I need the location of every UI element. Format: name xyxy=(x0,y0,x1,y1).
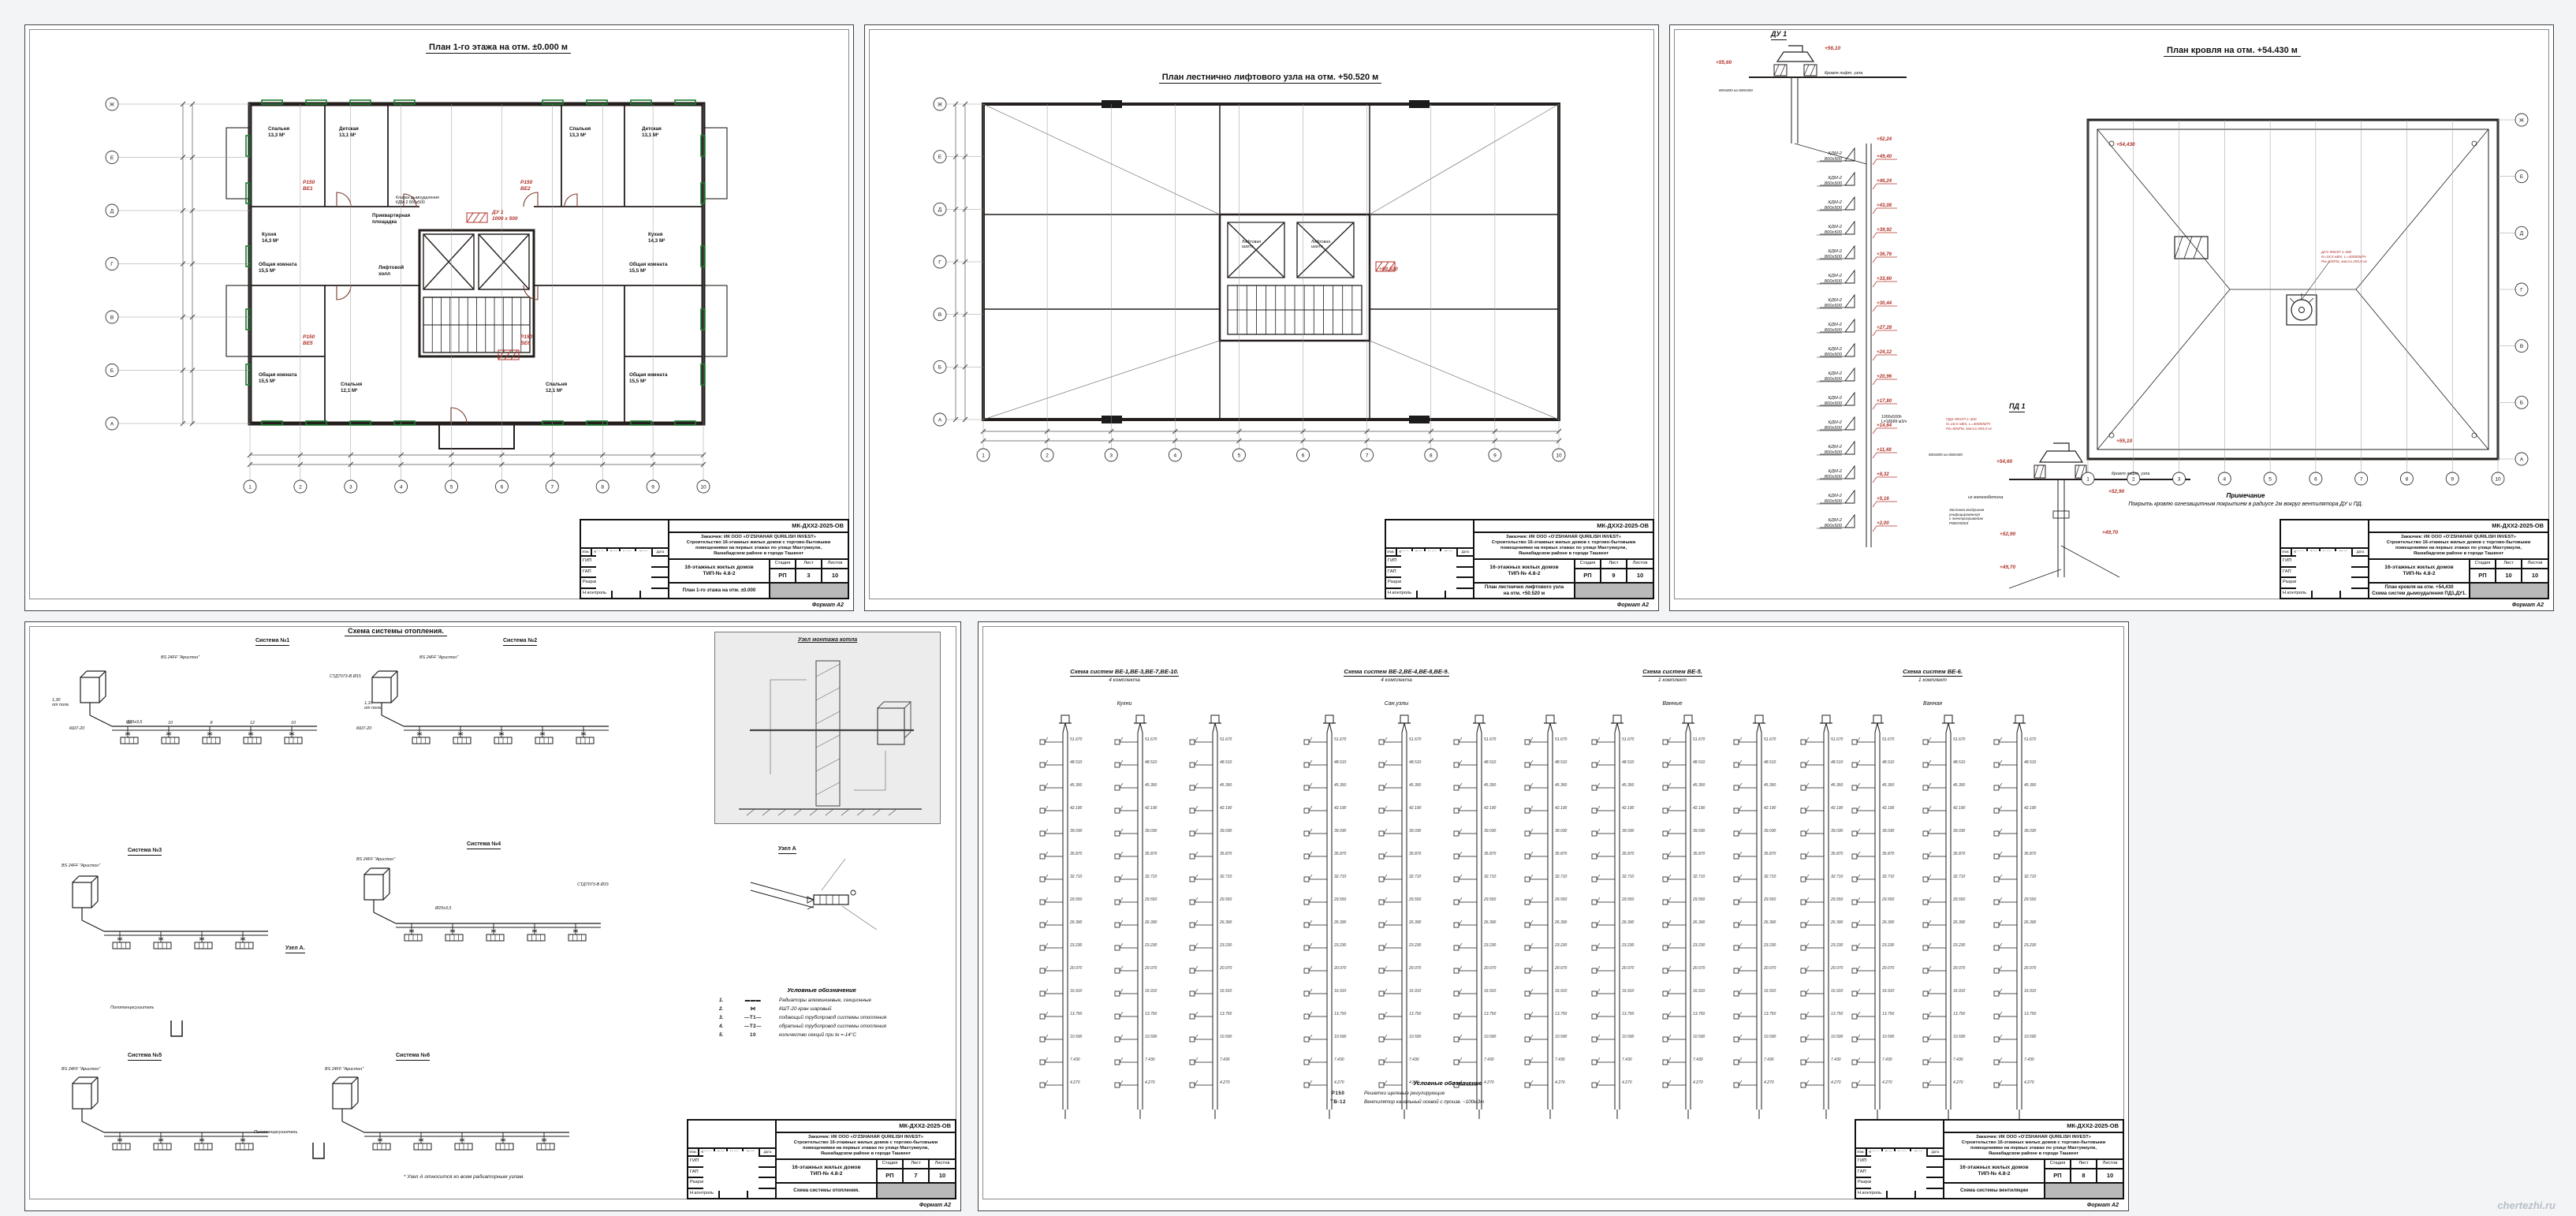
title-block: МК-ДХХ2-2025-ОВЗаказчик: ИК ООО «O'ZSHAH… xyxy=(687,1119,956,1199)
legend-item-symbol: 10 xyxy=(733,1032,774,1038)
annotation-label: 1,10 от пола xyxy=(364,701,381,711)
annotation-label: Полотенцесушитель xyxy=(254,1130,297,1135)
svg-label: 16.910 xyxy=(1693,989,1706,994)
stamp-cell: МК-ДХХ2-2025-ОВ xyxy=(776,1120,956,1132)
stamp-cell: 10 xyxy=(1627,569,1653,583)
sheet2-title: План лестнично лифтового узла на отм. +5… xyxy=(1113,73,1428,82)
legend-item-text: Решетки щелевые регулирующие xyxy=(1364,1091,1445,1096)
title-block: МК-ДХХ2-2025-ОВЗаказчик: ИК ООО «O'ZSHAH… xyxy=(2280,519,2549,599)
svg-label: 35.870 xyxy=(1831,852,1843,856)
svg-label: 3 xyxy=(1109,453,1113,458)
svg-label: 7.430 xyxy=(1622,1057,1632,1062)
door-arcs xyxy=(337,192,577,423)
axis-bubble: Г xyxy=(2515,283,2528,296)
stamp-cell: Лист xyxy=(2071,1159,2097,1169)
towel-rail xyxy=(171,1020,182,1036)
note-title: Примечание xyxy=(2041,492,2451,499)
svg-label: 48.510 xyxy=(1484,760,1497,765)
annotation-label: Клапан дымоудаления КДМ-2 800х500 xyxy=(396,196,439,205)
legend-item-symbol: ▬▬▬ xyxy=(733,998,774,1003)
svg-label: 51.670 xyxy=(1953,737,1966,742)
svg-label: 26.390 xyxy=(1408,920,1422,925)
svg-label: 29.550 xyxy=(1952,897,1966,902)
svg-label: 32.710 xyxy=(1764,875,1776,879)
svg-label: 42.190 xyxy=(1831,806,1843,811)
svg-label: А xyxy=(2520,457,2524,462)
axis-bubble: 8 xyxy=(1425,449,1437,461)
svg-label: 13.750 xyxy=(2024,1012,2037,1016)
axis-bubble: 3 xyxy=(345,480,357,493)
svg-label: 48.510 xyxy=(2024,760,2037,765)
annotation-label: BS 24FF "Аристон" xyxy=(419,655,458,660)
svg-label: В xyxy=(110,315,114,320)
svg-label: 13.750 xyxy=(1693,1012,1706,1016)
legend-item: 2.⋈КШТ-20 кран шаровый xyxy=(719,1006,924,1012)
stamp-cell: МК-ДХХ2-2025-ОВ xyxy=(669,520,848,532)
svg-label: 800х500 xyxy=(1825,255,1843,259)
stamp-cell: Лист xyxy=(903,1159,929,1169)
legend-item: ТВ-12Вентилятор канальный осевой с произ… xyxy=(1318,1099,1578,1105)
axis-bubble: Ж xyxy=(106,98,118,110)
inset-sketch xyxy=(715,632,940,823)
svg-label: 800х500 xyxy=(1825,426,1843,431)
heating-footnote: * Узел А относится ко всем радиаторным у… xyxy=(404,1174,524,1180)
axis-bubble: Б xyxy=(934,360,946,373)
room-type-label: Сан.узлы xyxy=(1361,701,1432,707)
svg-label: Г xyxy=(110,262,114,267)
svg-label: 10.590 xyxy=(2024,1035,2037,1039)
svg-label: 32.710 xyxy=(1220,875,1232,879)
stamp-cell: Листов xyxy=(2097,1159,2123,1169)
svg-label: 29.550 xyxy=(1333,897,1347,902)
svg-label: 45.350 xyxy=(1220,783,1232,788)
svg-label: 7.430 xyxy=(1409,1057,1419,1062)
stamp-cell: Лист xyxy=(2496,559,2522,569)
svg-label: 39.030 xyxy=(1882,829,1895,834)
legend-item-text: обратный трубопровод системы отопления xyxy=(779,1024,886,1029)
svg-label: +49,40 xyxy=(1877,154,1892,159)
axis-bubble: 8 xyxy=(596,480,609,493)
svg-label: 35.870 xyxy=(1693,852,1706,856)
svg-label: КДМ-2 xyxy=(1829,494,1843,498)
svg-label: 2 xyxy=(299,484,302,490)
annotation-label: +49,70 xyxy=(2102,530,2118,536)
svg-label: 6 xyxy=(2314,476,2317,482)
svg-label: 35.870 xyxy=(1484,852,1497,856)
svg-label: 29.550 xyxy=(1763,897,1776,902)
annotation-label: Система №4 xyxy=(467,841,501,849)
svg-label: 26.390 xyxy=(1333,920,1347,925)
svg-label: 23.230 xyxy=(1830,943,1843,948)
svg-label: КДМ-2 xyxy=(1829,298,1843,303)
du1-riser-scheme xyxy=(1749,46,1907,164)
svg-label: 32.710 xyxy=(1693,875,1706,879)
svg-label: Е xyxy=(938,155,942,160)
annotation-label: Кровля лифт. узла xyxy=(2112,472,2149,476)
stamp-cell: 16-этажных жилых домов ТИП-№ 4.8-2 xyxy=(1474,559,1575,583)
svg-label: Ж xyxy=(2519,117,2524,123)
svg-label: +8,32 xyxy=(1877,472,1889,477)
svg-label: 48.510 xyxy=(1145,760,1158,765)
svg-label: 5 xyxy=(2268,476,2272,482)
svg-label: 7.430 xyxy=(1555,1057,1565,1062)
svg-label: 39.030 xyxy=(1334,829,1347,834)
legend-item: 5.10количество секций при tн =-14°С xyxy=(719,1032,924,1038)
svg-label: 29.550 xyxy=(1881,897,1895,902)
svg-label: 7 xyxy=(1366,453,1369,458)
svg-label: 1 xyxy=(2086,476,2090,482)
annotation-label: Кухня 14,3 М² xyxy=(262,232,278,244)
svg-label: 42.190 xyxy=(1334,806,1347,811)
room-type-label: Кухни xyxy=(1089,701,1160,707)
svg-label: +27,28 xyxy=(1877,325,1892,330)
svg-label: 39.030 xyxy=(1484,829,1497,834)
legend-item: 1.▬▬▬Радиаторы алюминиевые, секционные xyxy=(719,998,924,1003)
svg-label: 13.750 xyxy=(1831,1012,1843,1016)
svg-label: 9 xyxy=(651,484,654,490)
legend-item-number: 3. xyxy=(719,1015,727,1020)
svg-label: 20.070 xyxy=(1144,966,1158,971)
axis-bubble: А xyxy=(934,413,946,426)
svg-label: 12 xyxy=(250,721,255,725)
stamp-cell: 9 xyxy=(1601,569,1627,583)
axis-bubble: 5 xyxy=(1232,449,1245,461)
axis-bubble: А xyxy=(106,417,118,430)
svg-label: Б xyxy=(938,365,941,371)
svg-label: 26.390 xyxy=(1763,920,1776,925)
stamp-cell xyxy=(2470,583,2548,599)
axis-bubble: В xyxy=(934,308,946,321)
stamp-cell: Схема системы вентиляции xyxy=(1944,1183,2045,1199)
stamp-cell: Стадия xyxy=(2045,1159,2071,1169)
svg-label: 20.070 xyxy=(2023,966,2037,971)
stamp-cell: Схема системы отопления. xyxy=(776,1183,877,1199)
axis-bubble: В xyxy=(106,311,118,323)
stamp-cell: РП xyxy=(2470,569,2496,583)
svg-label: 800х500 xyxy=(1825,181,1843,186)
svg-label: КДМ-2 xyxy=(1829,249,1843,254)
svg-label: 10.590 xyxy=(1334,1035,1347,1039)
svg-label: КДМ-2 xyxy=(1829,323,1843,327)
annotation-label: Р150 ВЕ5 xyxy=(303,334,315,347)
annotation-label: Система №1 xyxy=(255,638,289,646)
boiler-mounting-inset: Узел монтажа котла xyxy=(714,632,941,824)
svg-label: В xyxy=(2520,344,2523,349)
svg-label: 29.550 xyxy=(1483,897,1497,902)
svg-label: КДМ-2 xyxy=(1829,347,1843,352)
svg-label: 20.070 xyxy=(1881,966,1895,971)
svg-label: +17,80 xyxy=(1877,398,1892,404)
annotation-label: Заслонка воздушная унифицированная с эле… xyxy=(1949,508,1984,526)
svg-label: 10.590 xyxy=(1764,1035,1776,1039)
svg-label: 35.870 xyxy=(1409,852,1422,856)
svg-label: 10.590 xyxy=(1070,1035,1083,1039)
svg-label: 48.510 xyxy=(1693,760,1706,765)
annotation-label: Система №5 xyxy=(128,1053,162,1061)
svg-label: 45.350 xyxy=(1334,783,1347,788)
annotation-label: ДУ1-ФКОП 1-400 N=18,5 кВт, L=40000м³/ч Р… xyxy=(2321,251,2367,266)
svg-label: 42.190 xyxy=(1145,806,1158,811)
axis-bubble: 1 xyxy=(244,480,256,493)
svg-label: 42.190 xyxy=(1764,806,1776,811)
title-block: МК-ДХХ2-2025-ОВЗаказчик: ИК ООО «O'ZSHAH… xyxy=(580,519,849,599)
svg-label: 800х500 xyxy=(1825,206,1843,211)
svg-label: 13.750 xyxy=(1484,1012,1497,1016)
blank-signature-area xyxy=(1871,1151,1926,1191)
svg-label: 45.350 xyxy=(1484,783,1497,788)
stamp-cell: РП xyxy=(1575,569,1601,583)
svg-label: КДМ-2 xyxy=(1829,371,1843,376)
svg-label: 9 xyxy=(2451,476,2454,482)
svg-label: 20.070 xyxy=(1952,966,1966,971)
stamp-cell: 8 xyxy=(2071,1169,2097,1183)
svg-label: А xyxy=(938,417,942,423)
stamp-cell xyxy=(1855,1120,1944,1148)
svg-label: 51.670 xyxy=(1220,737,1232,742)
annotation-label: Полотенцесушитель xyxy=(110,1005,154,1010)
svg-label: +30,44 xyxy=(1877,300,1892,306)
svg-label: 16.910 xyxy=(1555,989,1568,994)
svg-label: 23.230 xyxy=(1219,943,1232,948)
svg-label: 800х500 xyxy=(1825,279,1843,284)
annotation-label: КШТ-20 xyxy=(69,726,84,731)
svg-label: 10.590 xyxy=(1484,1035,1497,1039)
svg-label: 2 xyxy=(1046,453,1049,458)
svg-label: 39.030 xyxy=(1555,829,1568,834)
legend-item-text: подающий трубопровод системы отопления xyxy=(779,1015,886,1020)
svg-label: Ж xyxy=(938,102,942,107)
annotation-label: Общая комната 15,5 М² xyxy=(259,372,296,384)
svg-label: 20.070 xyxy=(1692,966,1706,971)
svg-label: +39,92 xyxy=(1877,227,1892,233)
svg-label: 42.190 xyxy=(1882,806,1895,811)
svg-label: 8 xyxy=(210,721,213,725)
annotation-label: Ø25х3,5 xyxy=(126,720,142,725)
svg-label: 16.910 xyxy=(1622,989,1635,994)
stamp-cell: План кровля на отм. +54,430 Схема систем… xyxy=(2369,583,2470,599)
stamp-cell: Лист xyxy=(1601,559,1627,569)
svg-label: 29.550 xyxy=(2023,897,2037,902)
svg-label: 42.190 xyxy=(1555,806,1568,811)
svg-label: 4.270 xyxy=(1831,1080,1841,1085)
svg-label: 13.750 xyxy=(1953,1012,1966,1016)
svg-label: 800х500 xyxy=(1825,328,1843,333)
annotation-label: BS 24FF "Аристон" xyxy=(62,864,100,868)
svg-label: 7.430 xyxy=(1831,1057,1841,1062)
svg-label: 20.070 xyxy=(1483,966,1497,971)
svg-label: 39.030 xyxy=(1622,829,1635,834)
stamp-cell: План лестнично лифтового узла на отм. +5… xyxy=(1474,583,1575,599)
svg-label: 48.510 xyxy=(1070,760,1083,765)
svg-label: 20.070 xyxy=(1621,966,1635,971)
svg-label: 45.350 xyxy=(2024,783,2037,788)
svg-label: 13.750 xyxy=(1409,1012,1422,1016)
annotation-label: 1,30 от пола xyxy=(52,698,69,708)
stamp-cell: 16-этажных жилых домов ТИП-№ 4.8-2 xyxy=(776,1159,877,1183)
stamp-cell: Изм. xyxy=(2280,548,2291,556)
svg-label: 45.350 xyxy=(1831,783,1843,788)
format-note: Формат А2 xyxy=(1617,602,1649,608)
svg-label: КДМ-2 xyxy=(1829,200,1843,205)
stamp-cell xyxy=(2045,1183,2123,1199)
svg-label: 10.590 xyxy=(1220,1035,1232,1039)
svg-label: 29.550 xyxy=(1554,897,1568,902)
svg-label: Д xyxy=(938,207,942,213)
legend-item-text: Вентилятор канальный осевой с произв. ~1… xyxy=(1364,1099,1484,1105)
stamp-cell: 7 xyxy=(903,1169,929,1183)
svg-label: 48.510 xyxy=(1555,760,1568,765)
svg-label: 26.390 xyxy=(1144,920,1158,925)
axis-bubble: Б xyxy=(2515,396,2528,408)
annotation-label: Спальня 12,1 М² xyxy=(341,382,362,394)
svg-label: 35.870 xyxy=(1145,852,1158,856)
annotation-label: ДУ 1 1000 х 500 xyxy=(492,210,518,222)
svg-label: 800х500 xyxy=(1825,450,1843,455)
svg-label: 48.510 xyxy=(1764,760,1776,765)
svg-label: КДМ-2 xyxy=(1829,274,1843,278)
annotation-label: Узел А. xyxy=(285,946,305,953)
axis-bubble: 7 xyxy=(1361,449,1374,461)
svg-label: 5 xyxy=(450,484,453,490)
annotation-label: СТД7073-В Ø15 xyxy=(577,882,609,887)
axis-bubble: Д xyxy=(106,204,118,217)
svg-label: 23.230 xyxy=(1333,943,1347,948)
annotation-label: Система №3 xyxy=(128,848,162,856)
svg-label: Д xyxy=(110,208,114,214)
svg-label: +33,60 xyxy=(1877,276,1892,282)
svg-label: +36,76 xyxy=(1877,252,1892,257)
svg-label: 10.590 xyxy=(1555,1035,1568,1039)
annotation-label: +56,10 xyxy=(1825,46,1840,52)
stamp-cell: Заказчик: ИК ООО «O'ZSHAHAR QURILISH INV… xyxy=(1474,532,1653,559)
svg-label: 20.070 xyxy=(1219,966,1232,971)
note-text: Покрыть кровлю огнезащитным покрытием в … xyxy=(2041,502,2451,507)
annotation-label: +52,90 xyxy=(2000,532,2015,538)
annotation-label: 800х800 на 800х500 xyxy=(1719,88,1753,93)
axis-bubble: А xyxy=(2515,453,2528,465)
stamp-cell: 3 xyxy=(796,569,822,583)
svg-label: 7.430 xyxy=(1484,1057,1494,1062)
annotation-label: из железобетона xyxy=(1968,495,2003,500)
svg-label: 51.670 xyxy=(1764,737,1776,742)
svg-label: 42.190 xyxy=(1409,806,1422,811)
blank-signature-area xyxy=(596,551,651,591)
svg-label: 13.750 xyxy=(1220,1012,1232,1016)
legend-title: Условные обозначение xyxy=(719,987,924,994)
svg-label: +5,16 xyxy=(1877,496,1889,502)
svg-label: 8 xyxy=(1430,453,1433,458)
annotation-label: Общая комната 15,5 М² xyxy=(629,262,667,274)
svg-label: 51.670 xyxy=(1334,737,1347,742)
svg-label: 35.870 xyxy=(1220,852,1232,856)
annotation-label: Спальня 12,1 М² xyxy=(546,382,567,394)
sheet1-title: План 1-го этажа на отм. ±0.000 м xyxy=(325,43,672,52)
svg-label: 51.670 xyxy=(1555,737,1568,742)
sheet-ventilation-scheme: 51.67048.51045.35042.19039.03035.87032.7… xyxy=(978,621,2129,1211)
svg-label: 800х500 xyxy=(1825,377,1843,382)
svg-label: 42.190 xyxy=(1693,806,1706,811)
svg-label: 4.270 xyxy=(1882,1080,1892,1085)
svg-label: 26.390 xyxy=(2023,920,2037,925)
svg-label: 35.870 xyxy=(2024,852,2037,856)
svg-label: 4.270 xyxy=(2024,1080,2034,1085)
svg-label: 29.550 xyxy=(1830,897,1843,902)
svg-label: 32.710 xyxy=(1882,875,1895,879)
stamp-cell: Заказчик: ИК ООО «O'ZSHAHAR QURILISH INV… xyxy=(776,1132,956,1159)
svg-label: 23.230 xyxy=(1144,943,1158,948)
svg-label: 23.230 xyxy=(1408,943,1422,948)
axis-bubble: 9 xyxy=(1489,449,1501,461)
smoke-fan-du1 xyxy=(2175,237,2208,259)
axis-bubble: 10 xyxy=(1553,449,1565,461)
stamp-cell xyxy=(1385,520,1474,548)
svg-label: Б xyxy=(110,368,114,374)
svg-label: Д xyxy=(2520,231,2524,237)
axis-bubble: 10 xyxy=(697,480,710,493)
stamp-cell: Дата xyxy=(652,548,669,556)
stamp-cell: План 1-го этажа на отм. ±0.000 xyxy=(669,583,770,599)
stamp-cell: Дата xyxy=(2352,548,2369,556)
svg-label: 13.750 xyxy=(1764,1012,1776,1016)
svg-label: 6 xyxy=(1302,453,1305,458)
axis-bubble: Е xyxy=(106,151,118,164)
annotation-label: Р150 ВЕ1 xyxy=(303,180,315,192)
svg-label: +2,00 xyxy=(1877,520,1889,526)
svg-label: 26.390 xyxy=(1554,920,1568,925)
svg-label: 23.230 xyxy=(1881,943,1895,948)
svg-label: 800х500 xyxy=(1825,499,1843,504)
axis-bubble: 6 xyxy=(2309,472,2322,485)
svg-label: 16.910 xyxy=(1764,989,1776,994)
svg-label: 4.270 xyxy=(1693,1080,1703,1085)
outer-walls xyxy=(983,104,1559,420)
axis-bubble: Е xyxy=(934,151,946,163)
sheet-first-floor-plan: План 1-го этажа на отм. ±0.000 м 1234567… xyxy=(24,24,854,611)
svg-label: 6 xyxy=(501,484,504,490)
stamp-cell: Изм. xyxy=(1855,1148,1866,1156)
title-block: МК-ДХХ2-2025-ОВЗаказчик: ИК ООО «O'ZSHAH… xyxy=(1385,519,1654,599)
svg-label: 48.510 xyxy=(1622,760,1635,765)
svg-label: 32.710 xyxy=(1622,875,1635,879)
legend-item: 3.—Т1—подающий трубопровод системы отопл… xyxy=(719,1015,924,1020)
svg-label: 48.510 xyxy=(1953,760,1966,765)
stamp-cell xyxy=(770,583,848,599)
stamp-cell: Стадия xyxy=(1575,559,1601,569)
ventilation-legend: Условные обозначение Р150Решетки щелевые… xyxy=(1318,1080,1578,1105)
stamp-cell: РП xyxy=(877,1169,903,1183)
vent-scheme-header: Схема систем ВЕ-6.1 комплект xyxy=(1846,668,2019,683)
stamp-cell: 16-этажных жилых домов ТИП-№ 4.8-2 xyxy=(669,559,770,583)
svg-label: 3 xyxy=(2178,476,2181,482)
sheet4-title: Схема системы отопления. xyxy=(262,627,530,635)
svg-label: 29.550 xyxy=(1219,897,1232,902)
legend-item-symbol: Р150 xyxy=(1318,1091,1359,1096)
svg-label: 16.910 xyxy=(1484,989,1497,994)
svg-label: 39.030 xyxy=(1070,829,1083,834)
svg-label: 26.390 xyxy=(1830,920,1843,925)
format-note: Формат А2 xyxy=(2087,1203,2119,1208)
svg-label: 16.910 xyxy=(1882,989,1895,994)
svg-label: 4.270 xyxy=(1070,1080,1080,1085)
legend-item-number: 4. xyxy=(719,1024,727,1029)
annotation-label: +49,70 xyxy=(2000,565,2015,571)
svg-label: 51.670 xyxy=(1409,737,1422,742)
svg-label: +20,96 xyxy=(1877,374,1892,379)
stamp-cell: Листов xyxy=(929,1159,956,1169)
svg-label: 51.670 xyxy=(1831,737,1843,742)
annotation-label: Ø25х3,5 xyxy=(435,906,451,911)
axis-bubble: 7 xyxy=(2355,472,2368,485)
